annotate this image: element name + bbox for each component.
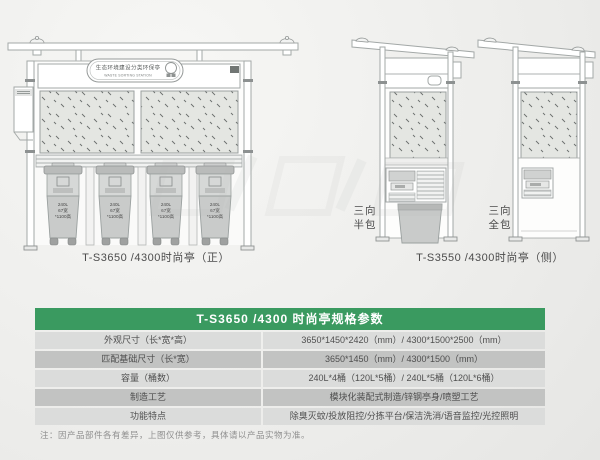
svg-text:67宽: 67宽 bbox=[161, 207, 171, 214]
side1-vent bbox=[428, 76, 441, 85]
front-glass-panel bbox=[40, 91, 134, 153]
svg-text:240L: 240L bbox=[161, 202, 172, 207]
svg-text:67宽: 67宽 bbox=[210, 207, 220, 214]
side1-bin bbox=[398, 204, 442, 243]
waste-bin: 240L 67宽 *1100高 bbox=[44, 163, 82, 245]
svg-text:*1100高: *1100高 bbox=[158, 213, 175, 220]
footnote: 注：因产品部件各有差异，上图仅供参考，具体请以产品实物为准。 bbox=[40, 429, 310, 441]
svg-text:67宽: 67宽 bbox=[58, 207, 68, 214]
side1-post-front bbox=[380, 47, 385, 237]
front-glass-panel bbox=[141, 91, 238, 153]
side1-cabinet bbox=[386, 168, 446, 202]
waste-bin: 240L 67宽 *1100高 bbox=[147, 163, 185, 245]
spec-row-label: 容量（桶数） bbox=[35, 370, 261, 387]
spec-row-value: 模块化装配式制造/锌钢亭身/喷塑工艺 bbox=[263, 389, 545, 406]
spec-row: 制造工艺模块化装配式制造/锌钢亭身/喷塑工艺 bbox=[35, 389, 545, 406]
sign-text-cn: 生态环境建设分类环保亭 bbox=[96, 64, 161, 72]
front-view-caption: T-S3650 /4300时尚亭（正） bbox=[82, 250, 230, 264]
front-foot bbox=[24, 246, 37, 250]
waste-bin: 240L 67宽 *1100高 bbox=[96, 163, 134, 245]
camera-icon bbox=[230, 66, 239, 73]
svg-text:67宽: 67宽 bbox=[110, 207, 120, 214]
side1-glass-panel bbox=[390, 92, 446, 158]
side-view-half-wrap: 三向 半包 bbox=[352, 38, 474, 243]
sign-logo-icon bbox=[166, 63, 177, 74]
front-column-right bbox=[244, 61, 251, 246]
svg-text:240L: 240L bbox=[210, 202, 221, 207]
front-side-panel bbox=[14, 87, 33, 140]
front-view: 生态环境建设分类环保亭 WASTE SORTING STATION bbox=[8, 36, 298, 264]
waste-bin: 240L 67宽 *1100高 bbox=[196, 163, 234, 245]
spec-row-value: 除臭灭蚊/投放阻控/分拣平台/保洁洗消/语音监控/光控照明 bbox=[263, 408, 545, 425]
technical-drawings: 生态环境建设分类环保亭 WASTE SORTING STATION bbox=[0, 0, 600, 300]
full-wrap-label-line1: 三向 bbox=[489, 204, 512, 217]
spec-row: 外观尺寸（长*宽*高）3650*1450*2420（mm）/ 4300*1500… bbox=[35, 332, 545, 349]
spec-table-title: T-S3650 /4300 时尚亭规格参数 bbox=[35, 308, 545, 330]
product-sheet: 生态环境建设分类环保亭 WASTE SORTING STATION bbox=[0, 0, 600, 460]
spec-row-value: 3650*1450*2420（mm）/ 4300*1500*2500（mm） bbox=[263, 332, 545, 349]
svg-text:*1100高: *1100高 bbox=[55, 213, 72, 220]
spec-row-value: 3650*1450（mm）/ 4300*1500（mm） bbox=[263, 351, 545, 368]
side2-post-back bbox=[580, 52, 585, 237]
sign-board: 生态环境建设分类环保亭 WASTE SORTING STATION bbox=[87, 59, 183, 82]
spec-row-label: 制造工艺 bbox=[35, 389, 261, 406]
side2-hopper bbox=[522, 168, 553, 198]
full-wrap-label-line2: 全包 bbox=[489, 218, 512, 231]
side1-post-back bbox=[448, 52, 453, 237]
spec-row-label: 外观尺寸（长*宽*高） bbox=[35, 332, 261, 349]
sign-text-en: WASTE SORTING STATION bbox=[104, 74, 152, 78]
half-wrap-label-line2: 半包 bbox=[354, 218, 377, 231]
svg-text:240L: 240L bbox=[58, 202, 69, 207]
half-wrap-label-line1: 三向 bbox=[354, 204, 377, 217]
front-foot bbox=[241, 246, 254, 250]
side2-glass-panel bbox=[521, 92, 577, 158]
spec-row-label: 功能特点 bbox=[35, 408, 261, 425]
side2-post-front bbox=[513, 47, 518, 237]
side-view-caption: T-S3550 /4300时尚亭（侧） bbox=[416, 250, 564, 264]
spec-row: 匹配基础尺寸（长*宽）3650*1450（mm）/ 4300*1500（mm） bbox=[35, 351, 545, 368]
spec-row-value: 240L*4桶（120L*5桶）/ 240L*5桶（120L*6桶） bbox=[263, 370, 545, 387]
spec-row-label: 匹配基础尺寸（长*宽） bbox=[35, 351, 261, 368]
spec-row: 容量（桶数）240L*4桶（120L*5桶）/ 240L*5桶（120L*6桶） bbox=[35, 370, 545, 387]
svg-text:*1100高: *1100高 bbox=[107, 213, 124, 220]
spec-table: T-S3650 /4300 时尚亭规格参数 外观尺寸（长*宽*高）3650*14… bbox=[35, 308, 545, 425]
spec-row: 功能特点除臭灭蚊/投放阻控/分拣平台/保洁洗消/语音监控/光控照明 bbox=[35, 408, 545, 425]
spec-table-rows: 外观尺寸（长*宽*高）3650*1450*2420（mm）/ 4300*1500… bbox=[35, 332, 545, 425]
svg-text:*1100高: *1100高 bbox=[207, 213, 224, 220]
side-view-full-wrap: 三向 全包 bbox=[478, 38, 595, 241]
front-roof-bar bbox=[8, 36, 298, 55]
svg-text:240L: 240L bbox=[110, 202, 121, 207]
